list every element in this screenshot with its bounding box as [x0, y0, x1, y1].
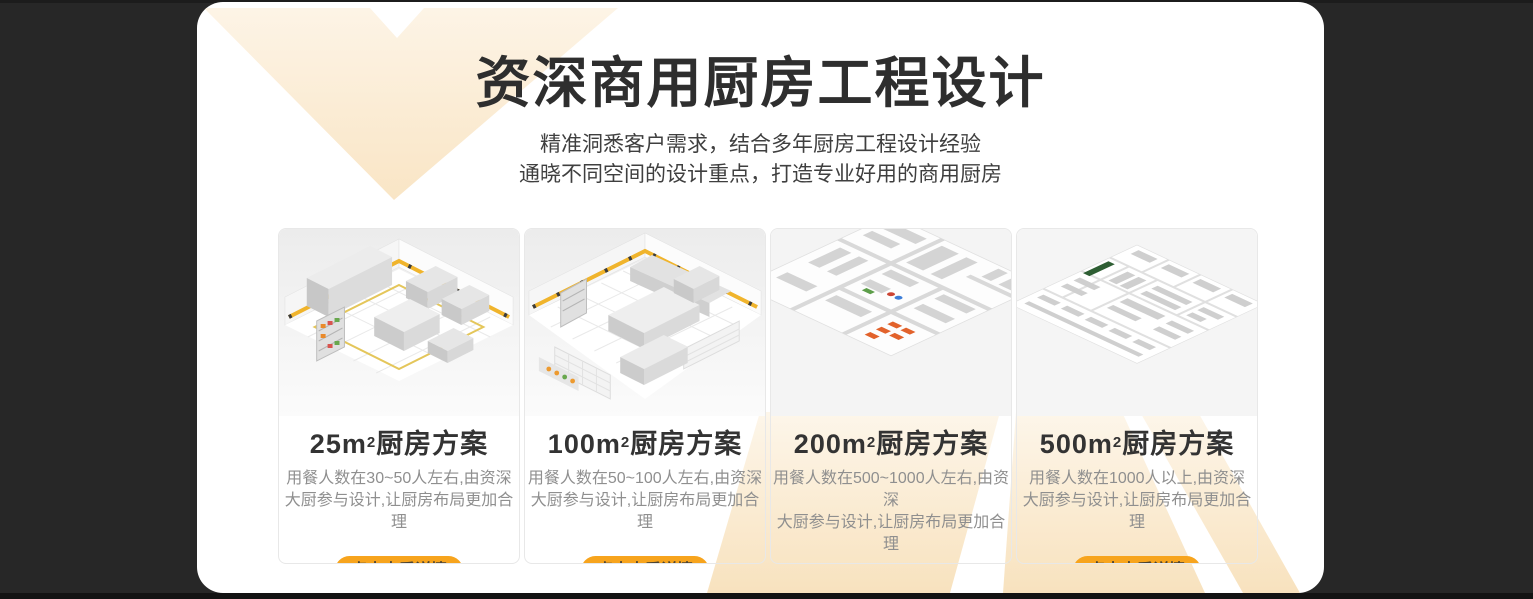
card-description: 用餐人数在50~100人左右,由资深大厨参与设计,让厨房布局更加合理 — [525, 468, 765, 534]
superscript-2: 2 — [867, 434, 876, 451]
section-header: 资深商用厨房工程设计 精准洞悉客户需求，结合多年厨房工程设计经验 通晓不同空间的… — [197, 2, 1324, 190]
kitchen-3d-render-200m2 — [771, 229, 1011, 416]
kitchen-3d-render-100m2 — [525, 229, 765, 416]
superscript-2: 2 — [1113, 434, 1122, 451]
plan-cards-row: 25m2厨房方案 用餐人数在30~50人左右,由资深大厨参与设计,让厨房布局更加… — [278, 228, 1258, 564]
kitchen-plan-card-100m2: 100m2厨房方案 用餐人数在50~100人左右,由资深大厨参与设计,让厨房布局… — [524, 228, 766, 564]
card-title: 500m2厨房方案 — [1040, 428, 1234, 459]
view-details-button[interactable]: 点击查看详情 — [581, 556, 709, 564]
bottom-dark-strip — [0, 593, 1533, 599]
superscript-2: 2 — [621, 434, 630, 451]
page-title: 资深商用厨房工程设计 — [197, 52, 1324, 114]
kitchen-3d-render-500m2 — [1017, 229, 1257, 416]
kitchen-plan-card-500m2: 500m2厨房方案 用餐人数在1000人以上,由资深大厨参与设计,让厨房布局更加… — [1016, 228, 1258, 564]
view-details-button[interactable]: 点击查看详情 — [1073, 556, 1201, 564]
superscript-2: 2 — [367, 434, 376, 451]
subtitle-line-1: 精准洞悉客户需求，结合多年厨房工程设计经验 — [197, 130, 1324, 160]
card-description: 用餐人数在500~1000人左右,由资深大厨参与设计,让厨房布局更加合理 — [771, 468, 1011, 556]
card-title: 25m2厨房方案 — [310, 428, 488, 459]
page-stage: 资深商用厨房工程设计 精准洞悉客户需求，结合多年厨房工程设计经验 通晓不同空间的… — [0, 0, 1533, 599]
kitchen-plan-card-25m2: 25m2厨房方案 用餐人数在30~50人左右,由资深大厨参与设计,让厨房布局更加… — [278, 228, 520, 564]
view-details-button[interactable]: 点击查看详情 — [335, 556, 463, 564]
card-description: 用餐人数在1000人以上,由资深大厨参与设计,让厨房布局更加合理 — [1017, 468, 1257, 534]
content-panel: 资深商用厨房工程设计 精准洞悉客户需求，结合多年厨房工程设计经验 通晓不同空间的… — [197, 2, 1324, 593]
card-description: 用餐人数在30~50人左右,由资深大厨参与设计,让厨房布局更加合理 — [279, 468, 519, 534]
page-subtitle: 精准洞悉客户需求，结合多年厨房工程设计经验 通晓不同空间的设计重点，打造专业好用… — [197, 130, 1324, 190]
kitchen-plan-card-200m2: 200m2厨房方案 用餐人数在500~1000人左右,由资深大厨参与设计,让厨房… — [770, 228, 1012, 564]
kitchen-3d-render-25m2 — [279, 229, 519, 416]
card-title: 100m2厨房方案 — [548, 428, 742, 459]
card-title: 200m2厨房方案 — [794, 428, 988, 459]
subtitle-line-2: 通晓不同空间的设计重点，打造专业好用的商用厨房 — [197, 160, 1324, 190]
